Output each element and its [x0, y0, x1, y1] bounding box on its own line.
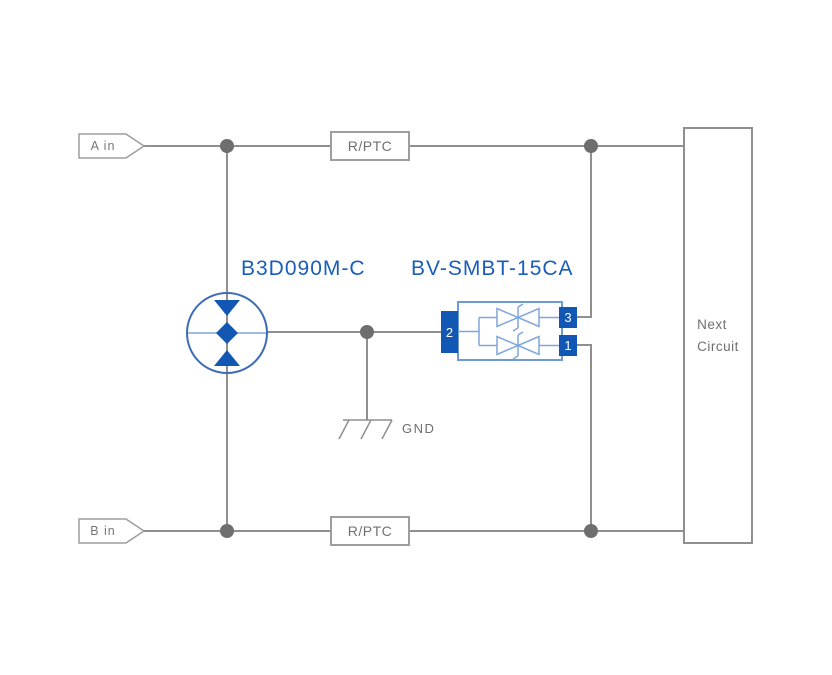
tvs-pin-2-label: 2 [446, 325, 453, 340]
tvs-diode-array-symbol [441, 300, 577, 362]
rptc-top-label: R/PTC [348, 138, 393, 154]
tvs-pin-2-pad: 2 [441, 311, 458, 353]
junction-dot-a-right [584, 139, 598, 153]
rptc-resistor-top: R/PTC [330, 131, 410, 161]
ground-label: GND [402, 421, 435, 436]
input-b-label: B in [78, 518, 128, 544]
tvs-pin-3-pad: 3 [559, 307, 577, 328]
wire-pin3-stub [576, 316, 592, 318]
tvs-pin-3-label: 3 [564, 310, 571, 325]
next-circuit-label-line2: Circuit [697, 336, 739, 358]
rptc-resistor-bottom: R/PTC [330, 516, 410, 546]
tvs-pin-1-pad: 1 [559, 335, 577, 356]
wire-right-vertical-bottom [590, 344, 592, 532]
next-circuit-block: Next Circuit [683, 127, 753, 544]
wire-right-vertical-top [590, 145, 592, 318]
wire-ground-drop [366, 332, 368, 420]
junction-dot-a-left [220, 139, 234, 153]
wire-gdt-to-tvs [266, 331, 442, 333]
gdt-part-number: B3D090M-C [241, 257, 366, 281]
wire-pin1-stub [576, 344, 592, 346]
junction-dot-b-left [220, 524, 234, 538]
tvs-pin-1-label: 1 [564, 338, 571, 353]
next-circuit-label-line1: Next [697, 314, 739, 336]
tvs-part-number: BV-SMBT-15CA [411, 257, 574, 281]
gas-discharge-tube-symbol [183, 289, 271, 377]
junction-dot-middle [360, 325, 374, 339]
rptc-bottom-label: R/PTC [348, 523, 393, 539]
junction-dot-b-right [584, 524, 598, 538]
schematic-diagram: A in B in R/PTC R/PTC Next Circuit B3D09… [0, 0, 832, 675]
input-a-label: A in [78, 133, 128, 159]
